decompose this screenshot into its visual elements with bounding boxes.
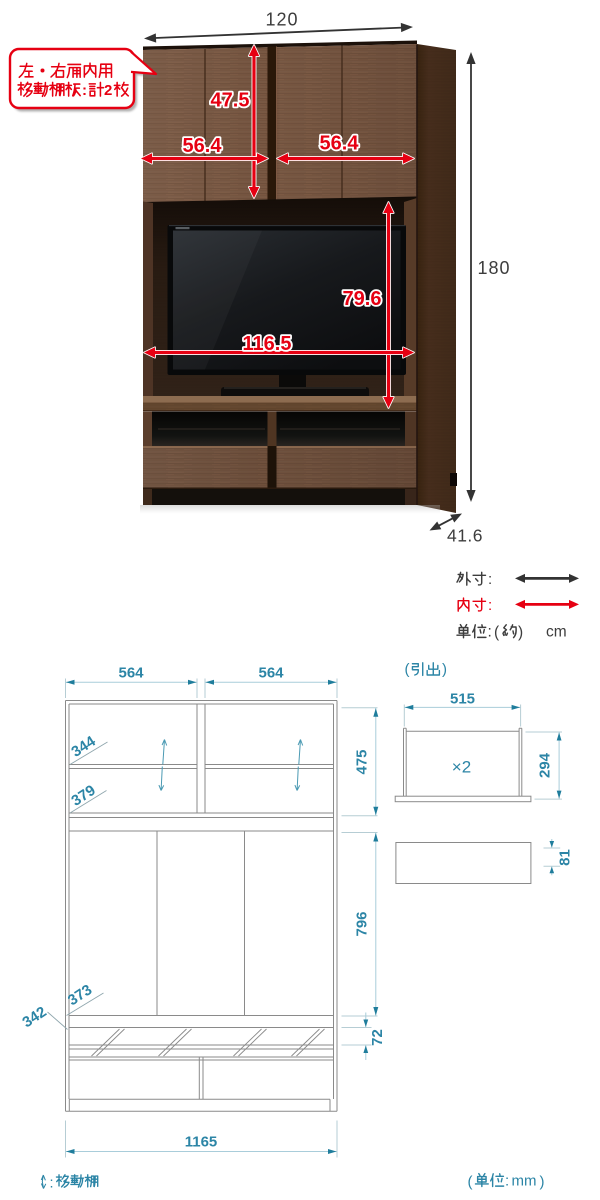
svg-text:): ): [518, 624, 523, 641]
svg-text:564: 564: [118, 665, 144, 682]
svg-text:1165: 1165: [185, 1134, 218, 1151]
svg-text:120: 120: [265, 10, 298, 30]
svg-text:72: 72: [369, 1029, 386, 1046]
svg-text::: :: [82, 82, 87, 99]
svg-text::: :: [505, 1173, 509, 1190]
svg-text:294: 294: [537, 752, 554, 778]
svg-text:(: (: [494, 624, 500, 641]
svg-text:515: 515: [450, 691, 475, 708]
svg-text:mm: mm: [512, 1173, 537, 1190]
svg-text:×2: ×2: [452, 758, 471, 777]
svg-text:2: 2: [104, 82, 112, 99]
svg-text:79.6: 79.6: [343, 288, 382, 310]
svg-text::: :: [488, 597, 492, 614]
svg-text:41.6: 41.6: [447, 526, 483, 546]
svg-text:56.4: 56.4: [320, 133, 360, 155]
svg-text:81: 81: [557, 849, 574, 866]
svg-text::: :: [488, 571, 492, 588]
svg-text:): ): [540, 1174, 545, 1191]
svg-text:796: 796: [354, 911, 371, 936]
svg-text:56.4: 56.4: [183, 135, 223, 157]
svg-text:475: 475: [354, 749, 371, 774]
svg-text::: :: [488, 624, 492, 641]
svg-text:116.5: 116.5: [243, 333, 292, 355]
svg-text:cm: cm: [546, 624, 567, 641]
svg-text:): ): [442, 661, 447, 678]
svg-text:(: (: [405, 661, 410, 678]
svg-text:564: 564: [258, 665, 284, 682]
svg-text:47.5: 47.5: [211, 90, 250, 112]
svg-text:180: 180: [477, 258, 510, 278]
svg-text::: :: [50, 1176, 54, 1192]
svg-text:(: (: [468, 1174, 473, 1191]
